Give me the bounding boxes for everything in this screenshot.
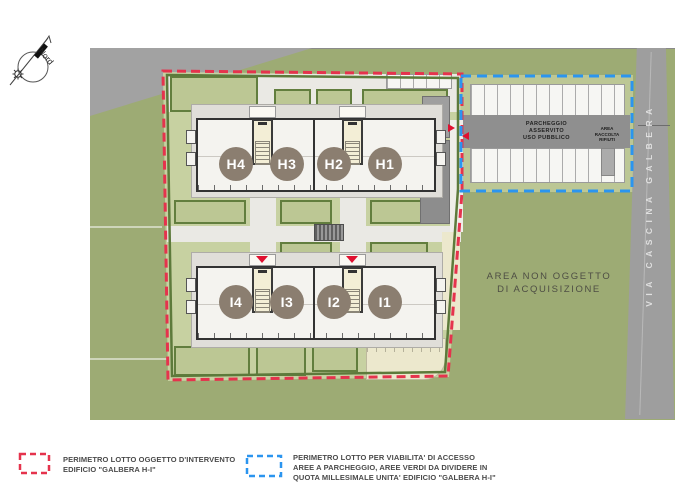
hedged-garden: [256, 346, 306, 376]
entry-arrow-icon: [462, 132, 469, 140]
window-ticks: [198, 185, 434, 190]
entry-arrow-icon: [448, 124, 455, 132]
landing: [348, 270, 357, 273]
entrance-porch: [339, 106, 366, 118]
legend-red-swatch: [18, 452, 51, 475]
stairs: [255, 141, 270, 165]
site-plan-canvas: PARCHEGGIO ASSERVITO USO PUBBLICO AREA R…: [0, 0, 690, 500]
unit-badge: I2: [317, 285, 351, 319]
parcel-line: [90, 226, 162, 228]
landing: [348, 122, 357, 125]
balcony: [186, 278, 196, 292]
party-wall: [313, 266, 315, 340]
unit-badge: H2: [317, 147, 351, 181]
hedged-garden: [312, 346, 358, 372]
waste-collection-box: [601, 148, 615, 176]
window-ticks: [198, 333, 434, 338]
waste-area-label: AREA RACCOLTA RIFIUTI: [586, 126, 628, 143]
landing: [258, 270, 267, 273]
parcel-line: [90, 358, 167, 360]
road-name-label: VIA CASCINA GALBERA: [644, 55, 658, 355]
balcony: [436, 300, 446, 314]
balcony: [436, 152, 446, 166]
unit-badge: H3: [270, 147, 304, 181]
legend-item-red-label: PERIMETRO LOTTO OGGETTO D'INTERVENTO EDI…: [63, 455, 263, 475]
north-compass-icon: [5, 30, 70, 95]
area-not-acquired-label: AREA NON OGGETTO DI ACQUISIZIONE: [463, 270, 635, 296]
party-wall: [313, 118, 315, 192]
stairs: [255, 289, 270, 313]
balcony: [436, 130, 446, 144]
unit-badge: H1: [368, 147, 402, 181]
entry-arrow-icon: [346, 256, 358, 263]
walkway-stub: [250, 198, 276, 228]
balcony: [186, 152, 196, 166]
unit-badge: I3: [270, 285, 304, 319]
legend-blue-swatch: [245, 454, 285, 479]
entrance-porch: [249, 106, 276, 118]
unit-badge: I1: [368, 285, 402, 319]
unit-badge: I4: [219, 285, 253, 319]
hatched-paving: [314, 224, 344, 241]
balcony: [186, 300, 196, 314]
balcony: [436, 278, 446, 292]
entry-arrow-icon: [256, 256, 268, 263]
landing: [258, 122, 267, 125]
parking-stalls-top: [470, 84, 625, 117]
parking-stalls-small: [386, 74, 452, 89]
hedged-garden: [280, 200, 332, 224]
hedged-garden: [174, 346, 250, 376]
unit-badge: H4: [219, 147, 253, 181]
legend-item-blue-label: PERIMETRO LOTTO PER VIABILITA' DI ACCESS…: [293, 453, 553, 483]
balcony: [186, 130, 196, 144]
hedged-garden: [174, 200, 246, 224]
